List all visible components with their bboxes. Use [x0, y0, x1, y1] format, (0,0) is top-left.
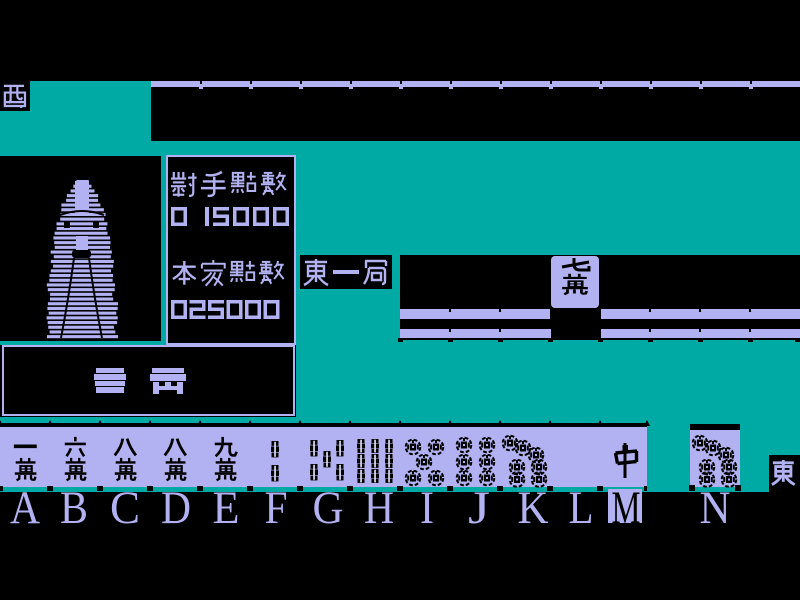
svg-text:C: C	[110, 482, 140, 534]
svg-text:J: J	[468, 482, 490, 534]
svg-text:G: G	[313, 482, 344, 534]
svg-text:F: F	[265, 482, 288, 534]
svg-text:E: E	[213, 482, 240, 534]
svg-text:H: H	[364, 482, 394, 534]
svg-text:N: N	[700, 482, 731, 534]
svg-text:L: L	[569, 482, 594, 534]
svg-text:D: D	[161, 482, 191, 534]
svg-text:B: B	[60, 482, 88, 534]
svg-text:K: K	[518, 482, 549, 534]
svg-text:I: I	[420, 482, 434, 534]
svg-text:M: M	[612, 482, 641, 534]
svg-text:A: A	[10, 482, 40, 534]
